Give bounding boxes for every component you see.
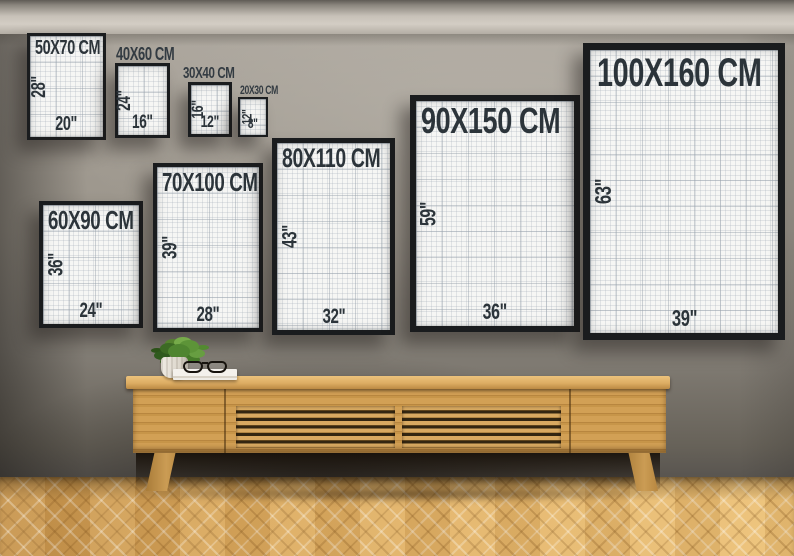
wall-backdrop xyxy=(0,30,794,477)
ceiling xyxy=(0,0,794,34)
room-scene: 50X70 CM 28" 20" 40X60 CM 24" 16" 30X40 … xyxy=(0,0,794,556)
sideboard-floor-shadow xyxy=(130,486,670,502)
